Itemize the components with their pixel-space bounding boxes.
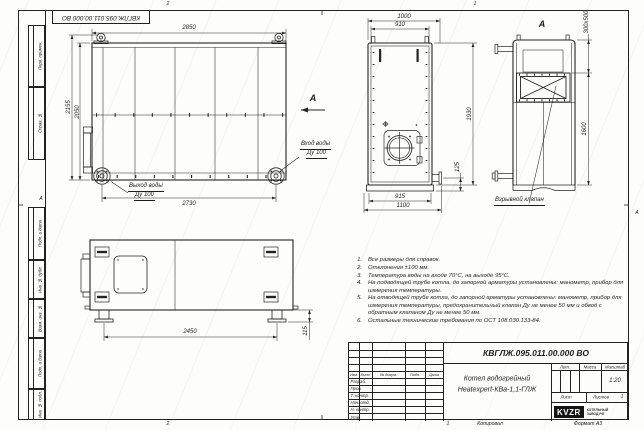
dim-label-125: 125 bbox=[455, 162, 461, 172]
dim-label-2155: 2155 bbox=[66, 100, 72, 113]
note-item: 1.Все размеры для справок. bbox=[352, 257, 624, 264]
strip-label: Инв. № подл. bbox=[34, 390, 46, 419]
strip-label: Подп. и дата bbox=[34, 208, 46, 259]
note-item: 6.Остальные технические требования по ОС… bbox=[352, 318, 624, 325]
org-logo-block: KVZR КОТЕЛЬНЫЙ ЗАВОД.РФ bbox=[554, 404, 626, 420]
dim-label-1930: 1930 bbox=[467, 107, 473, 120]
dim-label-915: 915 bbox=[395, 194, 405, 200]
col-list: Лист bbox=[361, 373, 371, 377]
col-izm: Изм. bbox=[350, 373, 358, 377]
sheets-label: Листов bbox=[593, 395, 609, 400]
zone-top-2: 2 bbox=[167, 1, 170, 7]
strip-label: Справ. № bbox=[34, 88, 46, 159]
col-sign: Подп. bbox=[410, 373, 420, 377]
strip-label: Перв. примен. bbox=[34, 26, 46, 86]
zone-right-a: А bbox=[635, 210, 638, 216]
org-text: КОТЕЛЬНЫЙ ЗАВОД.РФ bbox=[587, 408, 608, 417]
inlet-callout-line1: Вход воды bbox=[300, 141, 331, 150]
strip-label: Подп. и дата bbox=[34, 339, 46, 388]
scale-value: 1:20 bbox=[609, 378, 621, 384]
explosion-valve-callout-text: Взрывной клапан bbox=[494, 197, 545, 206]
view-a-title: А bbox=[539, 19, 546, 29]
title-block: КВГЛЖ.095.011.00.000 ВО Котел водогрейны… bbox=[348, 342, 628, 420]
row-ncontrol: Н. контр. bbox=[351, 407, 370, 412]
strip-label: Инв. № дубл. bbox=[34, 261, 46, 298]
doc-number: КВГЛЖ.095.011.00.000 ВО bbox=[483, 348, 589, 358]
zone-left-a: А bbox=[39, 196, 42, 202]
doc-name-line2: Heatexpert-КВа-1,1-ГЛЖ bbox=[458, 387, 536, 394]
row-checked: Пров. bbox=[351, 386, 362, 391]
technical-notes: 1.Все размеры для справок. 2.Отклонения … bbox=[352, 257, 624, 325]
dim-label-2450: 2450 bbox=[183, 329, 196, 335]
zone-bottom-2: 2 bbox=[167, 421, 170, 427]
strip-label: Взам. инв. № bbox=[34, 300, 46, 337]
dim-label-1000: 1000 bbox=[397, 14, 410, 20]
dim-label-910: 910 bbox=[395, 22, 405, 28]
dim-label-1100: 1100 bbox=[397, 203, 410, 209]
format-label: Формат А3 bbox=[574, 421, 602, 427]
lit-label: Лит. bbox=[560, 364, 570, 369]
dim-label-300x500: 300x500 bbox=[584, 10, 590, 33]
doc-name-line1: Котел водогрейный bbox=[464, 376, 531, 383]
zone-bottom-1: 1 bbox=[447, 421, 450, 427]
inlet-callout-line2: Ду 100 bbox=[306, 150, 327, 159]
dim-label-115: 115 bbox=[303, 326, 309, 336]
drawing-sheet: Перв. примен. Справ. № Подп. и дата Инв.… bbox=[0, 0, 644, 430]
strip-sign-date-1: Подп. и дата bbox=[28, 207, 45, 260]
dim-label-2730: 2730 bbox=[182, 201, 195, 207]
mass-label: Масса bbox=[584, 364, 597, 369]
note-item: 2.Отклонения ±100 мм. bbox=[352, 265, 624, 272]
sheets-value: 1 bbox=[621, 394, 624, 400]
scale-label: Масштаб bbox=[605, 364, 625, 369]
col-date: Дата bbox=[429, 373, 439, 377]
strip-inv-orig: Инв. № подл. bbox=[28, 389, 45, 420]
dim-label-2850: 2850 bbox=[182, 25, 195, 31]
outlet-callout: Выход воды Ду 100 bbox=[128, 183, 164, 201]
strip-first-use: Перв. примен. bbox=[28, 25, 45, 87]
outlet-callout-line2: Ду 100 bbox=[134, 192, 155, 201]
strip-ref-number: Справ. № bbox=[28, 87, 45, 160]
note-item: 4.На подводящей трубе котла, до запорной… bbox=[352, 280, 624, 294]
view-arrow-a-label: А bbox=[310, 93, 317, 103]
note-item: 5.На отводящей трубе котла, до запорной … bbox=[352, 295, 624, 317]
row-dept-head: Нач. отд. bbox=[351, 400, 370, 405]
zone-top-1: 1 bbox=[474, 1, 477, 7]
explosion-valve-callout: Взрывной клапан bbox=[494, 197, 545, 206]
outlet-callout-line1: Выход воды bbox=[128, 183, 164, 192]
stamp-number: КВГЛЖ.095.011.00.000 ВО bbox=[62, 14, 140, 21]
kvzr-logo: KVZR bbox=[554, 406, 584, 418]
inlet-callout: Вход воды Ду 100 bbox=[300, 141, 331, 159]
col-docnum: № докум. bbox=[380, 373, 397, 377]
strip-repl-inv: Взам. инв. № bbox=[28, 299, 45, 338]
sheet-label: Лист bbox=[560, 395, 571, 400]
inverted-designation-stamp: КВГЛЖ.095.011.00.000 ВО bbox=[52, 10, 150, 24]
strip-inv-dup: Инв. № дубл. bbox=[28, 260, 45, 299]
dim-label-2050: 2050 bbox=[75, 105, 81, 118]
dim-label-1600: 1600 bbox=[582, 121, 588, 136]
strip-sign-date-2: Подп. и дата bbox=[28, 338, 45, 389]
copied-label: Копировал bbox=[477, 421, 503, 427]
note-item: 3.Температура воды на входе 70°С, на вых… bbox=[352, 273, 624, 280]
